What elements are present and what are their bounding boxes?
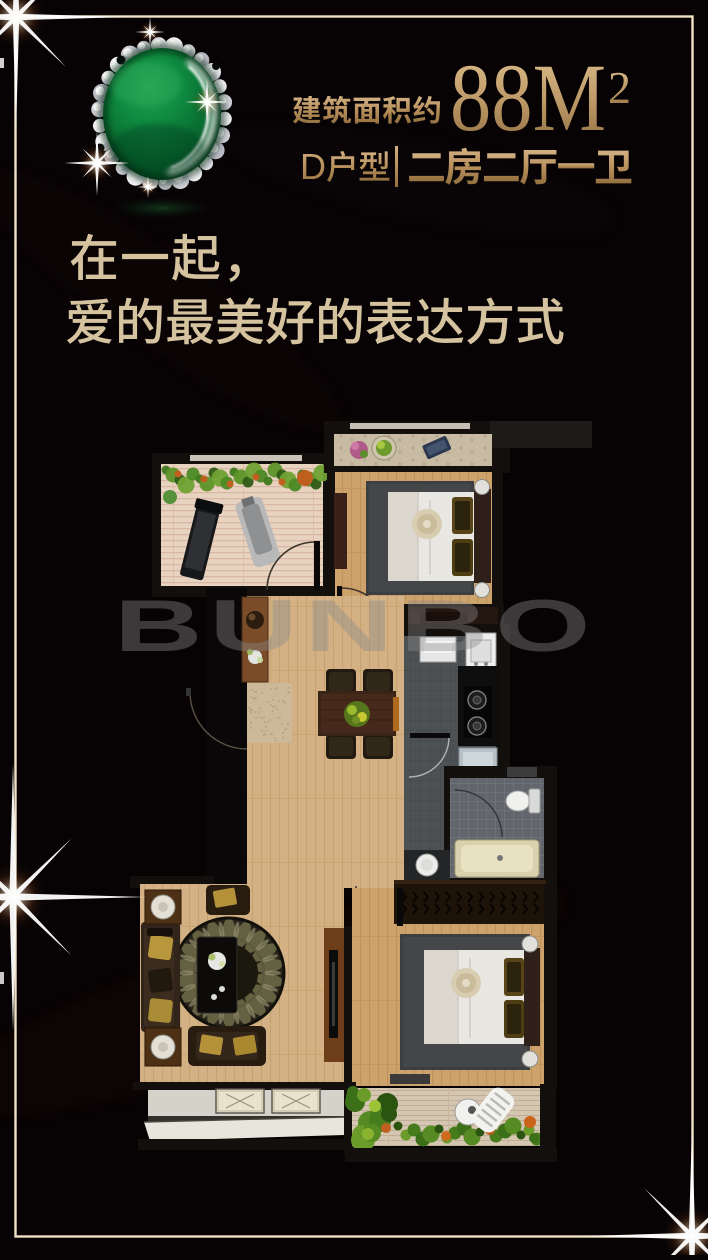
svg-text:2: 2	[608, 62, 631, 113]
svg-text:D: D	[300, 146, 326, 187]
svg-text:BUNBO: BUNBO	[114, 586, 597, 667]
svg-text:88M: 88M	[450, 44, 606, 151]
